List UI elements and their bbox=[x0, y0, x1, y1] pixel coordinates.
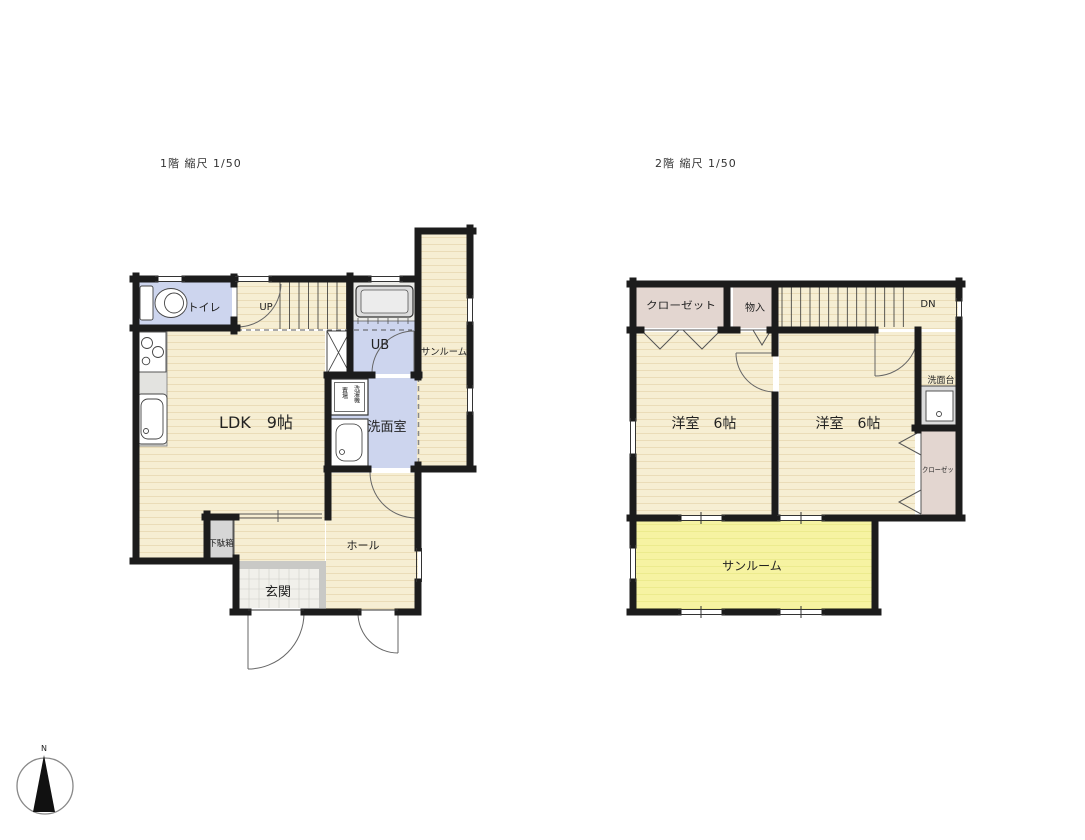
floor1-title: 1階 縮尺 1/50 bbox=[160, 156, 242, 170]
label-shoe-cabinet: 下駄箱 bbox=[208, 538, 234, 549]
label-ub: UB bbox=[371, 338, 389, 353]
label-closet-right: クローゼット bbox=[922, 465, 960, 474]
bathtub-fixture bbox=[356, 286, 413, 317]
label-up: UP bbox=[259, 302, 272, 313]
stove-fixture bbox=[137, 332, 166, 372]
label-sunroom-2f: サンルーム bbox=[722, 559, 782, 573]
compass: N bbox=[17, 744, 73, 814]
label-dn: DN bbox=[920, 299, 935, 310]
floorplan-page: 洗濯機 置場 トイレ UP bbox=[0, 0, 1085, 840]
entrance-step-edge-right bbox=[319, 561, 326, 608]
compass-north-label: N bbox=[41, 744, 47, 753]
floorplan-drawing: 洗濯機 置場 トイレ UP bbox=[0, 0, 1085, 840]
north-arrow-icon bbox=[33, 755, 55, 812]
floor2-plan: クローゼット 物入 DN 洗面台 クローゼット 洋室 6帖 洋室 6帖 サンルー… bbox=[630, 281, 962, 618]
window-stairs bbox=[235, 277, 272, 282]
room-stairs-up bbox=[237, 281, 347, 329]
toilet-fixture bbox=[140, 286, 187, 320]
floor2-title: 2階 縮尺 1/50 bbox=[655, 156, 737, 170]
kitchen-sink-fixture bbox=[137, 394, 167, 444]
label-washroom: 洗面室 bbox=[367, 419, 406, 435]
label-vanity: 洗面台 bbox=[927, 374, 954, 386]
label-ldk: LDK 9帖 bbox=[219, 413, 293, 432]
entrance-step-edge bbox=[236, 561, 326, 569]
label-sunroom-1f: サンルーム bbox=[421, 347, 467, 358]
label-closet-top: クローゼット bbox=[646, 300, 716, 312]
label-hall: ホール bbox=[347, 539, 380, 552]
entrance-door-left bbox=[248, 613, 304, 669]
window-bedroom-left bbox=[631, 418, 636, 457]
kitchen-counter bbox=[136, 331, 167, 446]
window-bath bbox=[368, 277, 403, 282]
laundry-machine-box: 洗濯機 置場 bbox=[331, 379, 368, 415]
label-bedroom-right: 洋室 6帖 bbox=[816, 415, 881, 432]
window-sunroom-left bbox=[631, 545, 636, 582]
washbasin-fixture-1f bbox=[331, 419, 368, 466]
laundry-label-col1: 洗濯機 bbox=[353, 384, 360, 404]
entrance-door-right bbox=[358, 613, 398, 653]
label-toilet: トイレ bbox=[188, 301, 221, 314]
label-storage: 物入 bbox=[745, 301, 765, 314]
label-bedroom-left: 洋室 6帖 bbox=[672, 415, 737, 432]
laundry-label-col2: 置場 bbox=[341, 387, 348, 400]
window-toilet bbox=[155, 277, 185, 282]
label-entrance: 玄関 bbox=[265, 585, 291, 600]
floor1-plan: 洗濯機 置場 トイレ UP bbox=[133, 228, 473, 669]
vanity-fixture bbox=[921, 386, 958, 426]
